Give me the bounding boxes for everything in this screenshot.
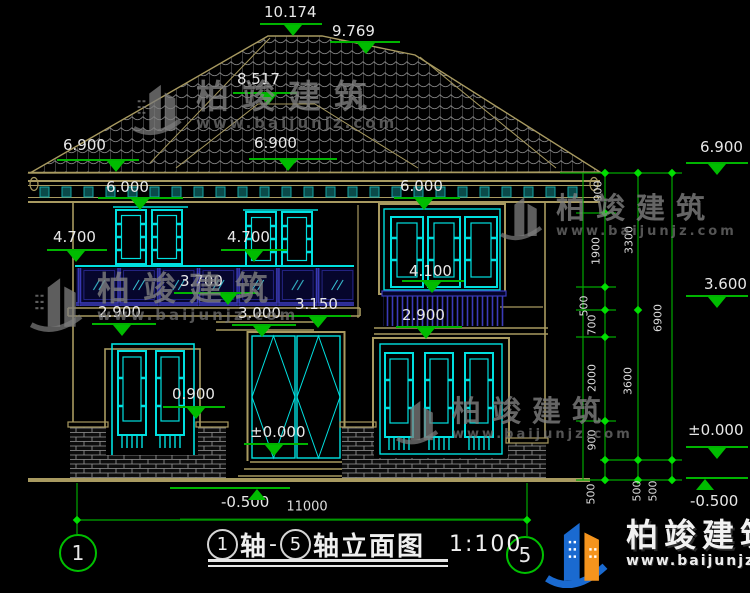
title-underline-thick — [208, 559, 448, 562]
dimension-label: 700 — [586, 315, 599, 336]
elevation-marker-triangle — [357, 43, 375, 54]
elevation-marker-triangle — [259, 94, 277, 105]
elevation-marker-triangle — [253, 326, 271, 337]
title-underline-thin — [208, 565, 448, 567]
elevation-marker-triangle — [187, 408, 205, 419]
elevation-marker-triangle — [417, 328, 435, 339]
dimension-label: 900 — [586, 430, 599, 451]
title-scale: 1:100 — [449, 532, 522, 557]
title-dash: - — [269, 532, 277, 557]
elevation-marker-triangle — [423, 282, 441, 293]
elevation-label: 4.700 — [53, 229, 96, 246]
axis-bubble-1: 1 — [59, 534, 97, 572]
title-text: 轴 — [240, 526, 268, 563]
elevation-marker-line — [174, 292, 258, 294]
elevation-marker-triangle — [708, 164, 726, 175]
elevation-label: 10.174 — [264, 4, 317, 21]
elevation-marker-triangle — [107, 161, 125, 172]
elevation-marker-triangle — [113, 325, 131, 336]
elevation-label: 0.900 — [172, 386, 215, 403]
dimension-label: 3600 — [622, 367, 635, 395]
dimension-label: 900 — [592, 181, 605, 202]
elevation-marker-triangle — [708, 448, 726, 459]
dimension-label: 500 — [578, 296, 591, 317]
elevation-label: 6.900 — [700, 139, 743, 156]
elevation-marker-triangle — [248, 489, 266, 500]
title-axis-to: 5 — [280, 529, 311, 560]
dimension-label: 500 — [585, 484, 598, 505]
elevation-label: 2.900 — [98, 304, 141, 321]
title-axis-from: 1 — [207, 529, 238, 560]
dimension-label: 6900 — [652, 304, 665, 332]
elevation-marker-triangle — [245, 251, 263, 262]
elevation-marker-triangle — [415, 199, 433, 210]
elevation-label: 9.769 — [332, 23, 375, 40]
elevation-marker-triangle — [219, 294, 237, 305]
annotation-layer: 10.1749.7698.5176.9006.9006.9006.0006.00… — [0, 0, 750, 593]
dimension-label: 11000 — [286, 500, 327, 515]
elevation-marker-triangle — [708, 297, 726, 308]
elevation-label: ±0.000 — [688, 422, 744, 439]
elevation-marker-triangle — [284, 25, 302, 36]
elevation-label: 6.000 — [106, 179, 149, 196]
elevation-marker-triangle — [67, 251, 85, 262]
elevation-label: 4.700 — [227, 229, 270, 246]
elevation-label: 8.517 — [237, 71, 280, 88]
elevation-label: 2.900 — [402, 307, 445, 324]
axis-number: 1 — [72, 541, 85, 565]
elevation-marker-line — [57, 159, 139, 161]
dimension-label: 2000 — [586, 364, 599, 392]
elevation-label: ±0.000 — [250, 424, 306, 441]
dimension-label: 1900 — [590, 237, 603, 265]
elevation-label: 3.700 — [180, 273, 223, 290]
cad-elevation-drawing: 10.1749.7698.5176.9006.9006.9006.0006.00… — [0, 0, 750, 593]
dimension-label: 500 — [631, 481, 644, 502]
elevation-label: 3.000 — [238, 305, 281, 322]
elevation-label: 3.150 — [295, 296, 338, 313]
dimension-label: 3300 — [623, 226, 636, 254]
elevation-label: 6.900 — [254, 135, 297, 152]
drawing-title: 1 轴 - 5 轴立面图 1:100 — [205, 526, 522, 563]
elevation-label: -0.500 — [690, 493, 738, 510]
elevation-label: 6.000 — [400, 178, 443, 195]
elevation-marker-triangle — [309, 317, 327, 328]
elevation-marker-triangle — [131, 199, 149, 210]
elevation-marker-triangle — [265, 445, 283, 456]
elevation-label: 3.600 — [704, 276, 747, 293]
elevation-marker-line — [170, 487, 290, 489]
elevation-marker-triangle — [279, 160, 297, 171]
elevation-label: 4.100 — [409, 263, 452, 280]
elevation-marker-triangle — [696, 479, 714, 490]
elevation-label: 6.900 — [63, 137, 106, 154]
dimension-label: 500 — [647, 481, 660, 502]
title-suffix: 轴立面图 — [313, 526, 425, 563]
